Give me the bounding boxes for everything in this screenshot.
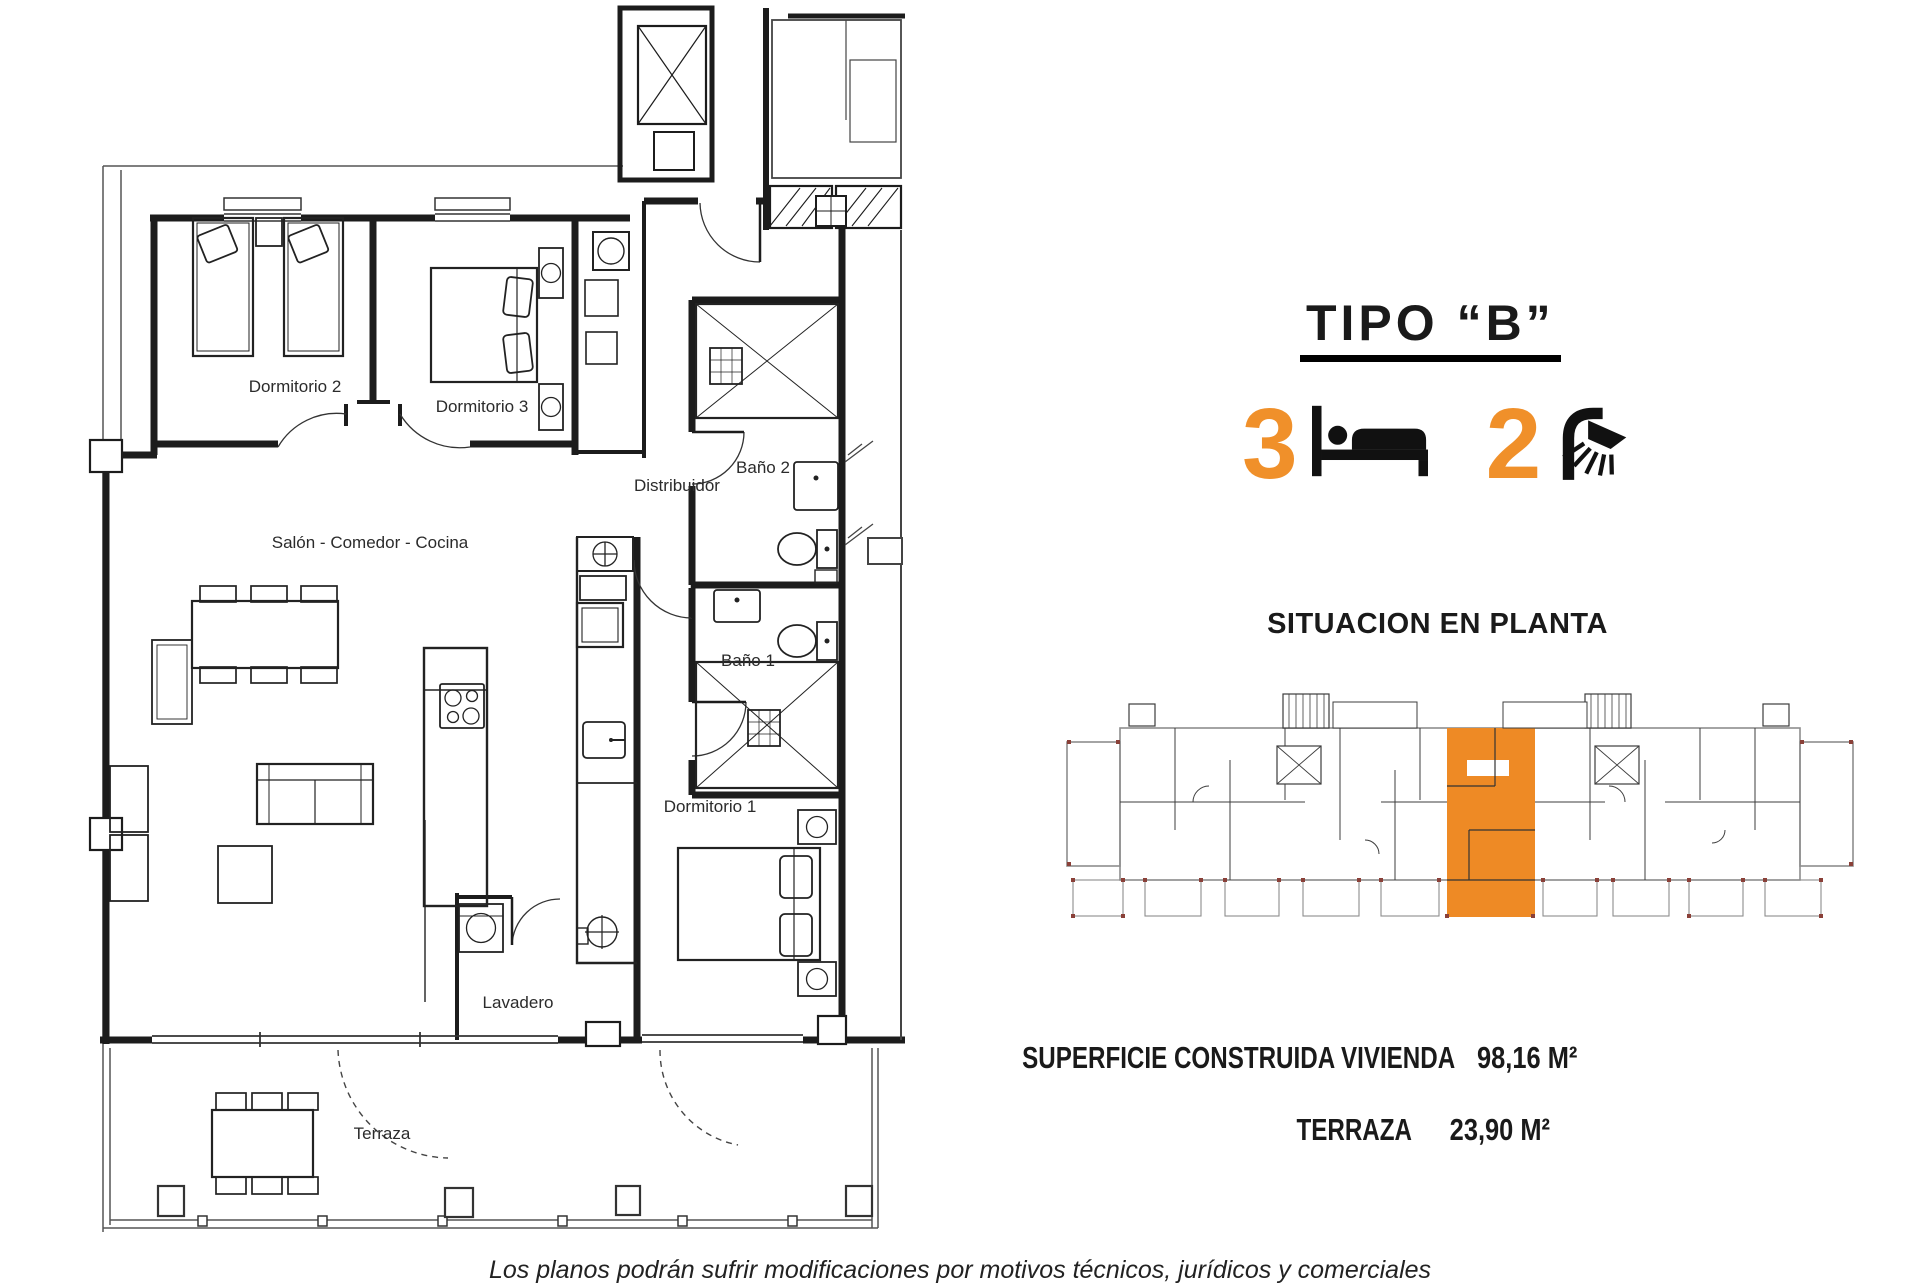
- lavadero-washer: [425, 820, 503, 1002]
- corridor-right: [845, 230, 902, 1040]
- area-label-terraza: TERRAZA: [1013, 1112, 1412, 1148]
- bed-icon: [1312, 405, 1428, 482]
- shower-icon: [1559, 402, 1633, 485]
- walls-medium: [346, 201, 644, 1040]
- kitchen-column: [577, 537, 637, 963]
- label-bano1: Baño 1: [721, 651, 775, 670]
- label-bano2: Baño 2: [736, 458, 790, 477]
- label-dormitorio1: Dormitorio 1: [664, 797, 757, 816]
- features-row: 3 2: [1242, 396, 1662, 491]
- label-terraza: Terraza: [354, 1124, 411, 1143]
- disclaimer: Los planos podrán sufrir modificaciones …: [0, 1256, 1920, 1285]
- bathrooms-count: 2: [1486, 401, 1542, 487]
- plan-type-title: TIPO “B”: [1300, 294, 1561, 362]
- salon-sofas: [110, 640, 373, 903]
- label-salon: Salón - Comedor - Cocina: [272, 533, 469, 552]
- area-row-terraza: TERRAZA 23,90 M²: [900, 1112, 1550, 1148]
- label-distribuidor: Distribuidor: [634, 476, 720, 495]
- stair-hatch-boxes: [770, 186, 901, 228]
- label-lavadero: Lavadero: [483, 993, 554, 1012]
- room-labels: Dormitorio 2 Dormitorio 3 Baño 2 Distrib…: [249, 377, 790, 1143]
- exterior-outline: [103, 166, 878, 1232]
- neighbor-room-partial: [772, 20, 901, 178]
- area-row-vivienda: SUPERFICIE CONSTRUIDA VIVIENDA 98,16 M²: [900, 1040, 1550, 1076]
- door-arcs: [278, 203, 760, 945]
- bath2-fixtures: [696, 304, 838, 583]
- closet-boiler: [585, 232, 629, 364]
- floor-plan-drawing: Dormitorio 2 Dormitorio 3 Baño 2 Distrib…: [0, 0, 960, 1280]
- label-dormitorio3: Dormitorio 3: [436, 397, 529, 416]
- bath1-fixtures: [696, 590, 838, 788]
- window-dorm1-terrace: [642, 1035, 803, 1042]
- highlighted-unit: [1447, 728, 1535, 917]
- wall-posts: [90, 440, 846, 1046]
- dorm1-bed: [678, 810, 836, 996]
- salon-dining-set: [192, 586, 338, 683]
- bedrooms-count: 3: [1242, 401, 1298, 487]
- area-value-terraza: 23,90 M²: [1437, 1112, 1550, 1148]
- dorm2-beds: [193, 218, 343, 356]
- terrace-dining-set: [212, 1093, 318, 1194]
- situation-heading: SITUACION EN PLANTA: [1140, 608, 1735, 641]
- window-top-dorm3: [435, 198, 510, 221]
- situation-plan: [1065, 690, 1855, 930]
- label-dormitorio2: Dormitorio 2: [249, 377, 342, 396]
- window-salon-terrace: [152, 1032, 558, 1047]
- area-label-vivienda: SUPERFICIE CONSTRUIDA VIVIENDA: [1022, 1040, 1455, 1076]
- area-value-vivienda: 98,16 M²: [1477, 1040, 1577, 1076]
- kitchen-island-cooktop: [424, 648, 487, 906]
